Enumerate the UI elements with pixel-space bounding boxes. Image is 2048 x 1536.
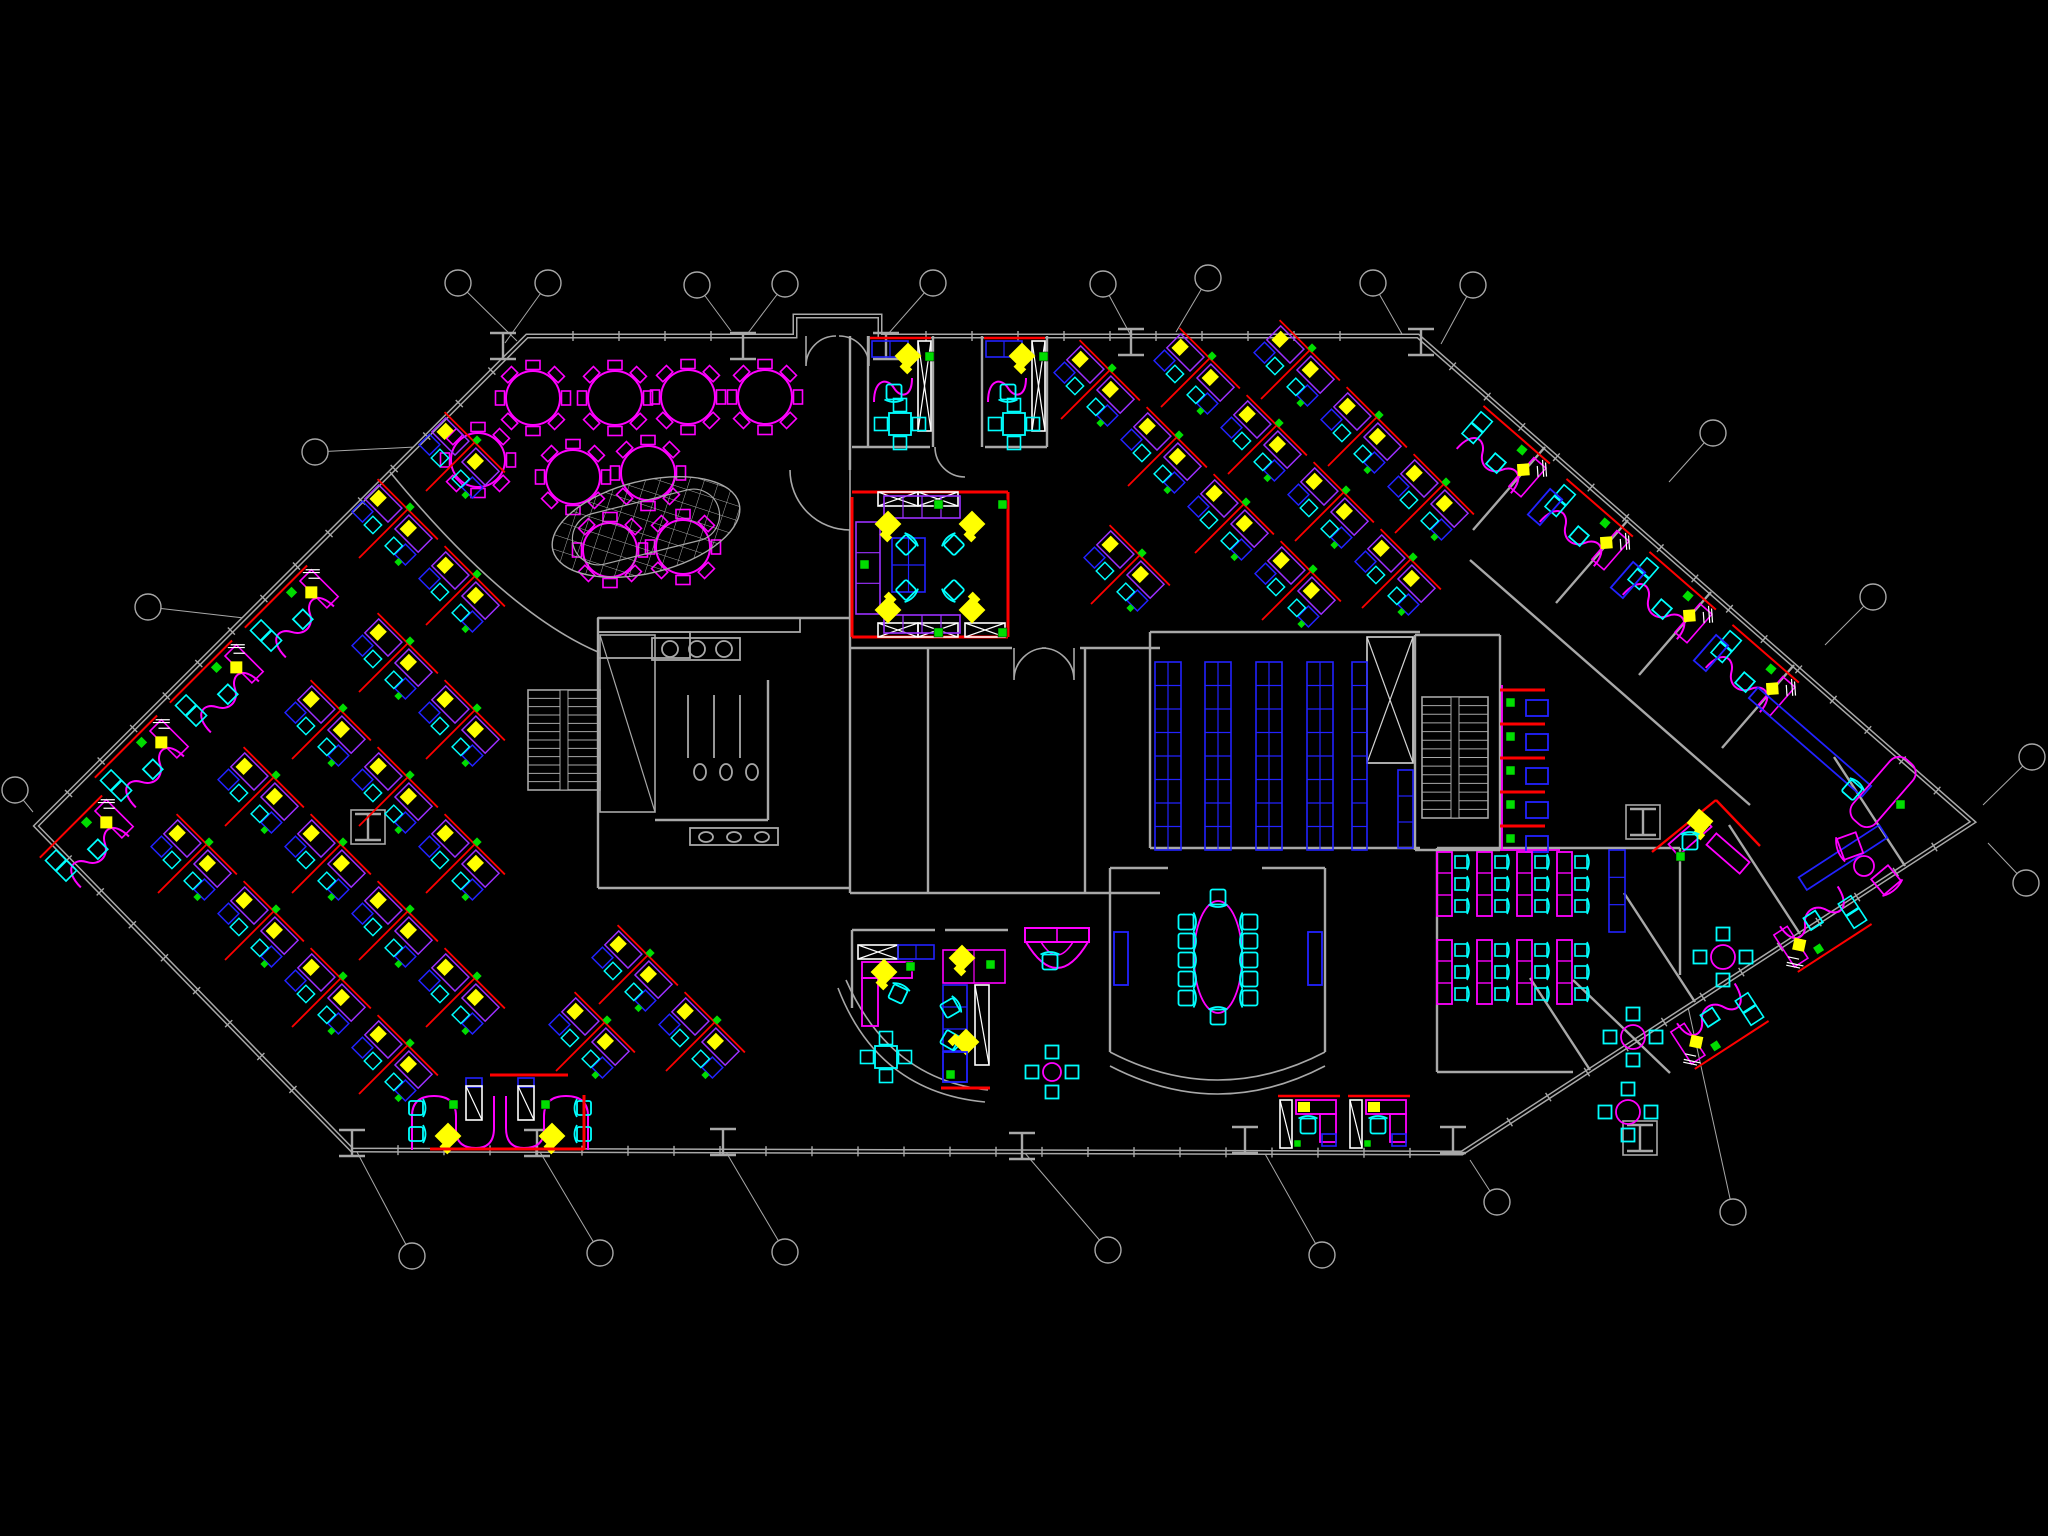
side-chair	[1604, 1031, 1617, 1044]
desk-surface	[395, 1051, 432, 1088]
task-chair	[1240, 989, 1258, 1008]
office-partition	[245, 566, 307, 628]
workstation-pod	[396, 943, 510, 1057]
banquet-chair	[663, 442, 679, 458]
desk-surface	[1268, 547, 1305, 584]
circle-fixture	[662, 641, 678, 657]
monitor	[949, 945, 974, 970]
i-beam-icon	[1009, 1133, 1035, 1159]
task-chair	[1179, 913, 1197, 932]
column-symbol	[1408, 329, 1434, 355]
banquet-chair	[703, 366, 719, 382]
training-table	[1517, 852, 1549, 916]
pod-chair	[364, 516, 381, 533]
panel-diag	[1350, 1100, 1362, 1148]
grid-bubble	[135, 594, 244, 620]
x-panel	[1280, 1100, 1292, 1148]
pod-chair	[1266, 357, 1283, 374]
table-top	[889, 413, 911, 435]
workstation-pod	[1061, 520, 1175, 634]
accessory-green	[1506, 766, 1515, 775]
grid-bubble	[1441, 272, 1486, 344]
workstation-pod	[329, 608, 443, 722]
s-curve-desk	[195, 667, 260, 732]
desk-surface	[365, 619, 402, 656]
column-symbol	[1118, 329, 1144, 355]
ellipse-fixture	[699, 832, 713, 842]
pod-accessory	[1296, 399, 1304, 407]
break-round-table	[1599, 1083, 1658, 1142]
table-top	[1003, 413, 1025, 435]
chair-seat	[1179, 972, 1194, 987]
pod-accessory	[1163, 486, 1171, 494]
office-accessory	[1599, 517, 1610, 528]
pod-chair	[1187, 386, 1204, 403]
pod-chair	[671, 1029, 688, 1046]
chair-seat	[1179, 934, 1194, 949]
trainee-chair	[1575, 878, 1587, 890]
pod-accessory	[394, 1094, 402, 1102]
banquet-round-table	[578, 361, 653, 436]
desk-surface	[1431, 490, 1468, 527]
chair-seat	[1371, 1119, 1386, 1134]
office-accessory	[1813, 943, 1824, 954]
column-symbol	[490, 333, 516, 359]
accessory-green	[1506, 834, 1515, 843]
office-accessory	[1765, 663, 1776, 674]
desk-surface	[365, 753, 402, 790]
office-computer	[155, 736, 167, 748]
trainee-chair	[1535, 900, 1547, 912]
pod-accessory	[260, 826, 268, 834]
pod-chair	[1133, 444, 1150, 461]
side-chair	[1740, 951, 1753, 964]
task-chair	[940, 578, 966, 604]
task-chair	[940, 531, 966, 557]
office-accessory	[211, 662, 222, 673]
banquet-chair	[502, 413, 518, 429]
task-chair	[894, 531, 920, 557]
pod-chair	[1096, 562, 1113, 579]
furniture-rect	[1114, 932, 1128, 985]
workstation-pod	[569, 920, 683, 1034]
wall-core	[36, 316, 1973, 1153]
monitor	[871, 959, 896, 984]
s-curve-desk	[120, 742, 185, 807]
desk-surface	[1134, 413, 1171, 450]
trainee-chair	[1575, 944, 1587, 956]
grid-bubble	[1669, 420, 1726, 482]
chair-seat	[1243, 991, 1258, 1006]
pod-chair	[1421, 512, 1438, 529]
workstation-pod	[636, 987, 750, 1101]
table-top	[546, 450, 600, 504]
accessory-green	[998, 628, 1007, 637]
grid-cabinet	[1256, 662, 1282, 850]
desk-surface	[298, 820, 335, 857]
chair-seat	[1179, 915, 1194, 930]
banquet-chair	[471, 423, 485, 432]
task-chair	[1209, 890, 1228, 908]
cad-viewport[interactable]	[0, 0, 2048, 1536]
monitor	[1009, 343, 1034, 368]
buffet-outline	[542, 459, 751, 595]
desk-surface	[1401, 460, 1438, 497]
bubble-circle	[1309, 1242, 1335, 1268]
pod-chair	[385, 1073, 402, 1090]
desk-surface	[261, 917, 298, 954]
desk-surface	[1167, 334, 1204, 371]
pod-chair	[1400, 491, 1417, 508]
pod-accessory	[634, 1004, 642, 1012]
grid-bubbles	[2, 265, 2045, 1269]
banquet-chair	[617, 442, 633, 458]
table-top	[661, 370, 715, 424]
furniture-rect	[1706, 833, 1749, 873]
accessory-green	[934, 500, 943, 509]
trainee-chair	[1495, 988, 1507, 1000]
pod-accessory	[327, 1027, 335, 1035]
grid-bubble	[1470, 1160, 1510, 1215]
desk-surface	[298, 686, 335, 723]
office-accessory	[1516, 444, 1527, 455]
banquet-chair	[681, 426, 695, 435]
pod-chair	[431, 985, 448, 1002]
chair-seat	[1243, 915, 1258, 930]
desk-surface	[395, 515, 432, 552]
desk-surface	[328, 984, 365, 1021]
trainee-chair	[1495, 856, 1507, 868]
trainee-chair	[1455, 966, 1467, 978]
pod-chair	[1233, 432, 1250, 449]
banquet-chair	[608, 427, 622, 436]
side-chair	[880, 1070, 893, 1083]
banquet-chair	[526, 361, 540, 370]
pod-chair	[452, 1006, 469, 1023]
pod-chair	[1333, 424, 1350, 441]
pod-chair	[1354, 445, 1371, 462]
table-top	[738, 370, 792, 424]
desk-surface	[298, 954, 335, 991]
pod-chair	[385, 671, 402, 688]
desk-surface	[1127, 561, 1164, 598]
pod-accessory	[1096, 419, 1104, 427]
panel-diag	[975, 985, 989, 1065]
pod-accessory	[394, 960, 402, 968]
circle-fixture	[716, 641, 732, 657]
accessory-green	[1506, 800, 1515, 809]
accessory-green	[449, 1100, 458, 1109]
side-chair	[1599, 1106, 1612, 1119]
workstation-pod	[128, 809, 242, 923]
accessory-green	[906, 962, 915, 971]
x-panel	[1367, 637, 1413, 763]
table-top	[1557, 852, 1572, 916]
computer	[1298, 1102, 1310, 1112]
pod-chair	[1166, 365, 1183, 382]
desk-surface	[1097, 531, 1134, 568]
monitor	[959, 511, 984, 536]
stair	[1422, 697, 1488, 818]
desk-surface	[395, 783, 432, 820]
pod-chair	[452, 604, 469, 621]
banquet-chair	[502, 367, 518, 383]
desk-surface	[592, 1028, 629, 1065]
banquet-chair	[758, 426, 772, 435]
bubble-circle	[920, 270, 946, 296]
task-chair	[1179, 970, 1197, 989]
accessory-green	[925, 352, 934, 361]
monitor	[895, 343, 920, 368]
trainee-chair	[1575, 988, 1587, 1000]
x-panel	[1350, 1100, 1362, 1148]
banquet-chair	[780, 366, 796, 382]
banquet-chair	[507, 453, 516, 467]
office-partition	[170, 641, 232, 703]
side-chair	[1066, 1066, 1079, 1079]
curved-wall	[790, 470, 850, 530]
training-table	[1557, 852, 1589, 916]
chair-seat	[1243, 972, 1258, 987]
bubble-circle	[1090, 271, 1116, 297]
pod-accessory	[394, 692, 402, 700]
workstation-pod	[329, 474, 443, 588]
desk-surface	[231, 753, 268, 790]
pod-chair	[431, 583, 448, 600]
desk-surface	[1298, 577, 1335, 614]
pedestal	[1392, 1134, 1406, 1146]
interior-wall	[1473, 447, 1545, 530]
grid-cabinet	[1352, 662, 1367, 850]
bubble-circle	[445, 270, 471, 296]
curved-wall	[1042, 648, 1074, 680]
trainee-chair	[1455, 988, 1467, 1000]
grid-bubble	[1360, 270, 1402, 334]
accessory-green	[986, 960, 995, 969]
pod-chair	[452, 872, 469, 889]
task-chair	[894, 578, 920, 604]
chair-seat	[1243, 953, 1258, 968]
grid-bubble	[445, 270, 517, 341]
desk-surface	[1368, 535, 1405, 572]
desk-surface	[328, 850, 365, 887]
pod-chair	[364, 918, 381, 935]
grid-cabinet	[1609, 850, 1625, 932]
desk-surface	[432, 820, 469, 857]
workstation-pod	[526, 987, 640, 1101]
pod-accessory	[461, 759, 469, 767]
private-office-desk	[170, 636, 272, 738]
desk-surface	[462, 448, 499, 485]
chair-seat	[1301, 1119, 1316, 1134]
computer	[872, 511, 902, 541]
office-computer	[1517, 463, 1530, 476]
task-chair	[1179, 932, 1197, 951]
pod-chair	[364, 784, 381, 801]
banquet-chair	[717, 390, 726, 404]
pod-accessory	[461, 893, 469, 901]
pod-accessory	[1397, 608, 1405, 616]
office-accessory	[1710, 1040, 1721, 1051]
circle-fixture	[1854, 856, 1874, 876]
i-beam-icon	[1440, 1127, 1466, 1153]
desk-surface	[1267, 326, 1304, 363]
chair-seat	[1243, 934, 1258, 949]
grid-bubble	[540, 1152, 613, 1266]
banquet-chair	[657, 412, 673, 428]
guest-sofa	[1846, 908, 1866, 928]
pod-accessory	[1263, 474, 1271, 482]
banquet-chair	[584, 413, 600, 429]
bubble-circle	[535, 270, 561, 296]
monitor	[875, 511, 900, 536]
pod-chair	[297, 851, 314, 868]
bubble-leader	[1024, 1152, 1108, 1250]
ellipse-fixture	[727, 832, 741, 842]
table-top	[1437, 852, 1452, 916]
bubble-leader	[540, 1152, 600, 1253]
s-curve-desk	[270, 592, 335, 657]
ellipse-fixture	[755, 832, 769, 842]
banquet-chair	[548, 413, 564, 429]
workstation-pod	[396, 407, 510, 521]
grid-cabinet	[1155, 662, 1181, 850]
furniture-rect	[862, 978, 878, 1026]
desk-surface	[462, 716, 499, 753]
x-panel	[975, 985, 989, 1065]
table-top	[1557, 940, 1572, 1004]
pod-chair	[251, 939, 268, 956]
guest-sofa	[251, 620, 272, 641]
grid-bubble	[1988, 843, 2039, 896]
office-computer	[305, 586, 317, 598]
pod-chair	[1221, 532, 1238, 549]
curved-wall	[935, 447, 965, 477]
pod-accessory	[327, 893, 335, 901]
banquet-chair	[584, 367, 600, 383]
task-chair	[1240, 951, 1258, 970]
computer	[956, 511, 986, 541]
pod-chair	[452, 738, 469, 755]
table-top	[588, 371, 642, 425]
pod-chair	[230, 784, 247, 801]
column-symbol	[1626, 805, 1660, 839]
stair-rail	[1451, 697, 1459, 818]
grid-bubble	[357, 1152, 425, 1269]
desk-surface	[462, 984, 499, 1021]
interior-wall	[1624, 893, 1695, 1002]
ellipse-fixture	[1194, 901, 1242, 1013]
pod-chair	[163, 851, 180, 868]
trainee-chair	[1575, 900, 1587, 912]
desk-surface	[365, 1021, 402, 1058]
table-top	[1711, 945, 1735, 969]
monitor	[875, 597, 900, 622]
cabinet-frame	[1398, 770, 1413, 848]
panel-diag	[1280, 1100, 1292, 1148]
training-table	[1557, 940, 1589, 1004]
pod-accessory	[591, 1071, 599, 1079]
table-top	[1477, 940, 1492, 1004]
bubble-circle	[772, 1239, 798, 1265]
stair-rail	[560, 690, 568, 790]
office-computer	[1600, 536, 1613, 549]
desk-surface	[1164, 443, 1201, 480]
side-chair	[1622, 1083, 1635, 1096]
ellipse-fixture	[720, 764, 732, 780]
pod-accessory	[1126, 604, 1134, 612]
grid-bubble	[1264, 1152, 1335, 1268]
banquet-chair	[493, 475, 509, 491]
guest-sofa	[101, 770, 122, 791]
training-table	[1477, 852, 1509, 916]
circle-fixture	[689, 641, 705, 657]
panel-diag	[466, 1086, 482, 1120]
x-panel	[858, 945, 898, 959]
trainee-chair	[1455, 856, 1467, 868]
banquet-chair	[630, 367, 646, 383]
desk-surface	[1398, 565, 1435, 602]
desk-surface	[432, 686, 469, 723]
trainee-chair	[1495, 878, 1507, 890]
pod-accessory	[327, 759, 335, 767]
side-chair	[1717, 928, 1730, 941]
desk-surface	[395, 649, 432, 686]
pod-chair	[1367, 566, 1384, 583]
desk-surface	[328, 716, 365, 753]
bubble-leader	[1264, 1152, 1322, 1255]
monitor	[959, 597, 984, 622]
pod-chair	[297, 717, 314, 734]
column-symbol	[1009, 1133, 1035, 1159]
accessory-green	[946, 1070, 955, 1079]
side-chair	[1694, 951, 1707, 964]
task-chair	[1179, 951, 1197, 970]
office-computer	[230, 661, 242, 673]
pod-chair	[251, 805, 268, 822]
grid-bubble	[1176, 265, 1221, 332]
stair	[528, 690, 600, 790]
workstation-pod	[262, 943, 376, 1057]
side-chair	[1026, 1066, 1039, 1079]
pod-chair	[625, 983, 642, 1000]
table-top	[506, 371, 560, 425]
pod-chair	[364, 650, 381, 667]
office-computer	[1792, 938, 1806, 952]
trainee-chair	[1535, 856, 1547, 868]
interior-wall	[1729, 825, 1800, 934]
pod-chair	[318, 872, 335, 889]
bubble-circle	[135, 594, 161, 620]
desk-surface	[261, 783, 298, 820]
pod-accessory	[1196, 407, 1204, 415]
curved-wall	[806, 336, 836, 366]
accessory-green	[1676, 852, 1685, 861]
training-table	[1437, 852, 1469, 916]
chair-back	[905, 589, 920, 604]
banquet-chair	[641, 436, 655, 445]
pod-accessory	[394, 558, 402, 566]
chair-back	[893, 981, 911, 991]
furniture-rect	[1308, 932, 1322, 985]
pod-chair	[1066, 377, 1083, 394]
bubble-circle	[399, 1243, 425, 1269]
grid-cabinet	[1205, 662, 1231, 850]
task-chair	[1240, 970, 1258, 989]
table-top	[1043, 1063, 1061, 1081]
bubble-circle	[1095, 1237, 1121, 1263]
bubble-circle	[1360, 270, 1386, 296]
